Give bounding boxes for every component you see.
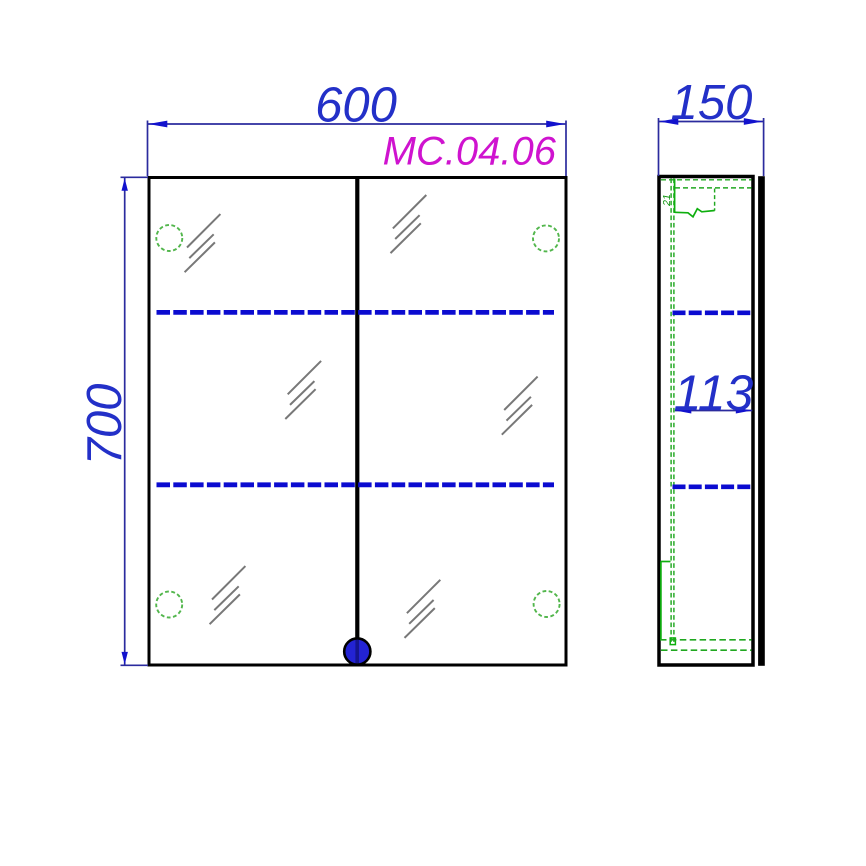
svg-text:700: 700 bbox=[78, 384, 132, 466]
svg-text:MC.04.06: MC.04.06 bbox=[383, 130, 557, 174]
svg-text:113: 113 bbox=[674, 365, 754, 421]
svg-text:21: 21 bbox=[661, 194, 673, 207]
svg-text:600: 600 bbox=[315, 79, 397, 133]
svg-text:150: 150 bbox=[671, 76, 753, 130]
